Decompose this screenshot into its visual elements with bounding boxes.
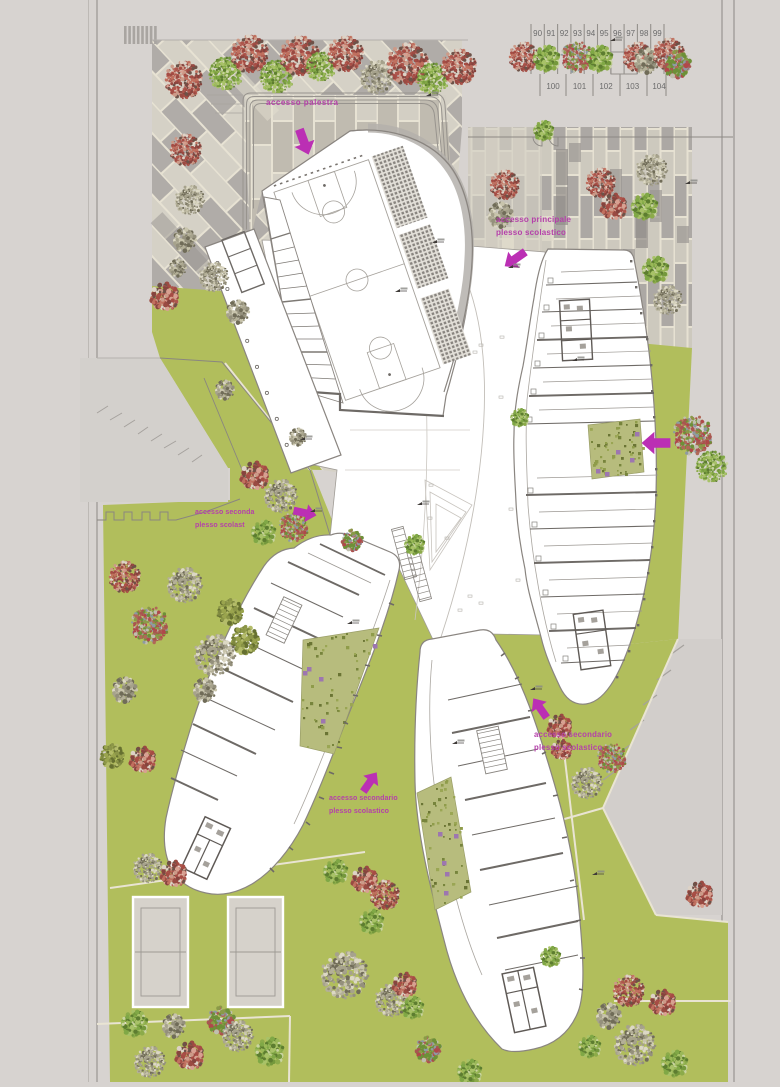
svg-text:accesso principale: accesso principale bbox=[496, 215, 572, 224]
svg-text:plesso scolastico: plesso scolastico bbox=[329, 808, 389, 815]
svg-text:accesso palestra: accesso palestra bbox=[266, 98, 339, 107]
svg-text:93: 93 bbox=[573, 29, 582, 38]
svg-text:plesso scolastico: plesso scolastico bbox=[496, 228, 566, 237]
svg-text:accesso secondario: accesso secondario bbox=[534, 730, 612, 739]
svg-text:91: 91 bbox=[546, 29, 555, 38]
svg-text:103: 103 bbox=[626, 82, 640, 91]
svg-text:plesso scolast: plesso scolast bbox=[195, 522, 245, 529]
svg-text:90: 90 bbox=[533, 29, 542, 38]
svg-text:102: 102 bbox=[599, 82, 613, 91]
svg-text:92: 92 bbox=[560, 29, 569, 38]
svg-text:100: 100 bbox=[546, 82, 560, 91]
svg-text:98: 98 bbox=[640, 29, 649, 38]
svg-text:plesso scolastico: plesso scolastico bbox=[534, 743, 602, 752]
svg-text:99: 99 bbox=[653, 29, 662, 38]
svg-text:accesso secondario: accesso secondario bbox=[329, 795, 398, 802]
svg-text:accesso seconda: accesso seconda bbox=[195, 509, 254, 516]
svg-text:97: 97 bbox=[626, 29, 635, 38]
svg-text:95: 95 bbox=[600, 29, 609, 38]
svg-text:101: 101 bbox=[573, 82, 587, 91]
svg-text:104: 104 bbox=[652, 82, 666, 91]
svg-text:94: 94 bbox=[586, 29, 595, 38]
